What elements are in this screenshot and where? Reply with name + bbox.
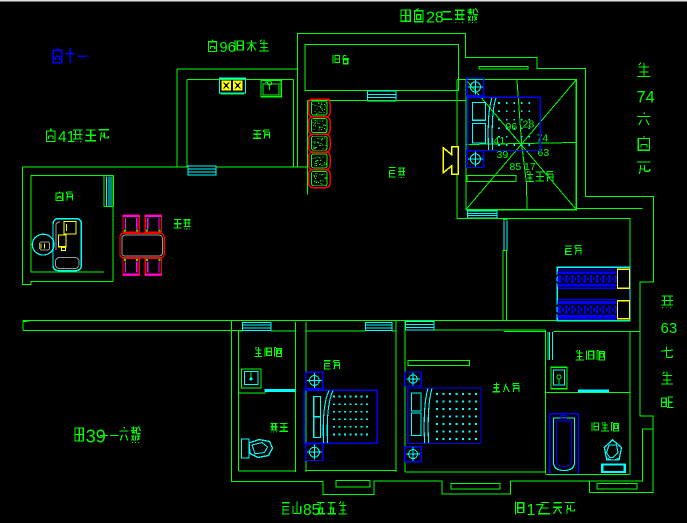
- svg-text:96: 96: [220, 40, 236, 56]
- svg-text:63: 63: [661, 320, 678, 337]
- svg-text:74: 74: [537, 133, 549, 145]
- svg-text:85: 85: [303, 502, 320, 519]
- svg-text:85: 85: [510, 161, 522, 173]
- svg-text:74: 74: [637, 89, 655, 107]
- svg-text:63: 63: [538, 147, 550, 159]
- svg-text:28: 28: [426, 10, 444, 27]
- svg-text:39: 39: [86, 427, 106, 447]
- svg-text:17: 17: [527, 502, 545, 519]
- svg-text:28: 28: [523, 119, 535, 131]
- svg-text:17: 17: [524, 161, 536, 173]
- svg-text:41: 41: [58, 129, 75, 146]
- svg-text:96: 96: [506, 121, 518, 133]
